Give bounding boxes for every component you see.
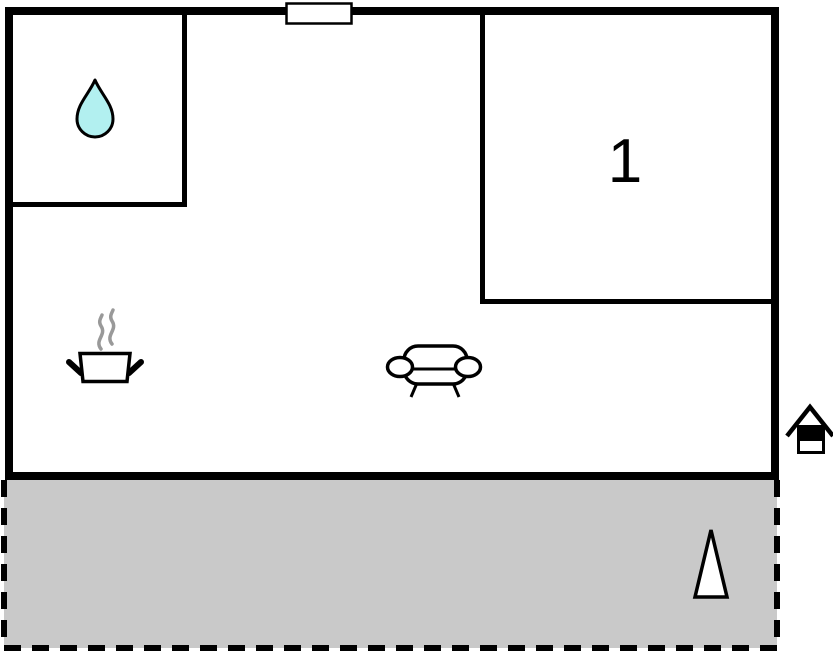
house-body-top xyxy=(797,426,825,442)
sofa-armrest-left xyxy=(388,358,413,377)
terrace-area xyxy=(4,480,777,648)
window-marker xyxy=(287,4,352,24)
floor-plan-svg: 1 xyxy=(0,0,833,652)
sofa-armrest-right xyxy=(456,358,481,377)
floor-plan: 1 xyxy=(0,0,833,652)
building-outline xyxy=(9,11,775,476)
pot-body xyxy=(80,354,130,382)
room1-label: 1 xyxy=(608,127,642,196)
house-entrance-icon xyxy=(787,407,833,453)
